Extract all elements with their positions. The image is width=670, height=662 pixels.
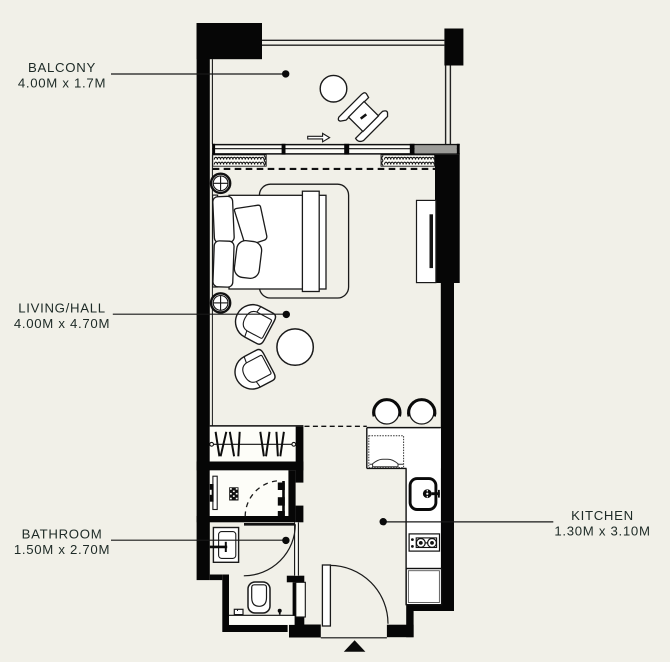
svg-text:1.30M x 3.10M: 1.30M x 3.10M	[554, 523, 650, 538]
svg-text:4.00M x 4.70M: 4.00M x 4.70M	[14, 316, 110, 331]
svg-text:LIVING/HALL: LIVING/HALL	[18, 301, 106, 316]
svg-text:BALCONY: BALCONY	[28, 60, 96, 75]
svg-text:KITCHEN: KITCHEN	[571, 508, 634, 523]
svg-text:4.00M x 1.7M: 4.00M x 1.7M	[18, 75, 106, 90]
svg-text:1.50M x 2.70M: 1.50M x 2.70M	[14, 542, 110, 557]
svg-text:BATHROOM: BATHROOM	[22, 527, 103, 542]
